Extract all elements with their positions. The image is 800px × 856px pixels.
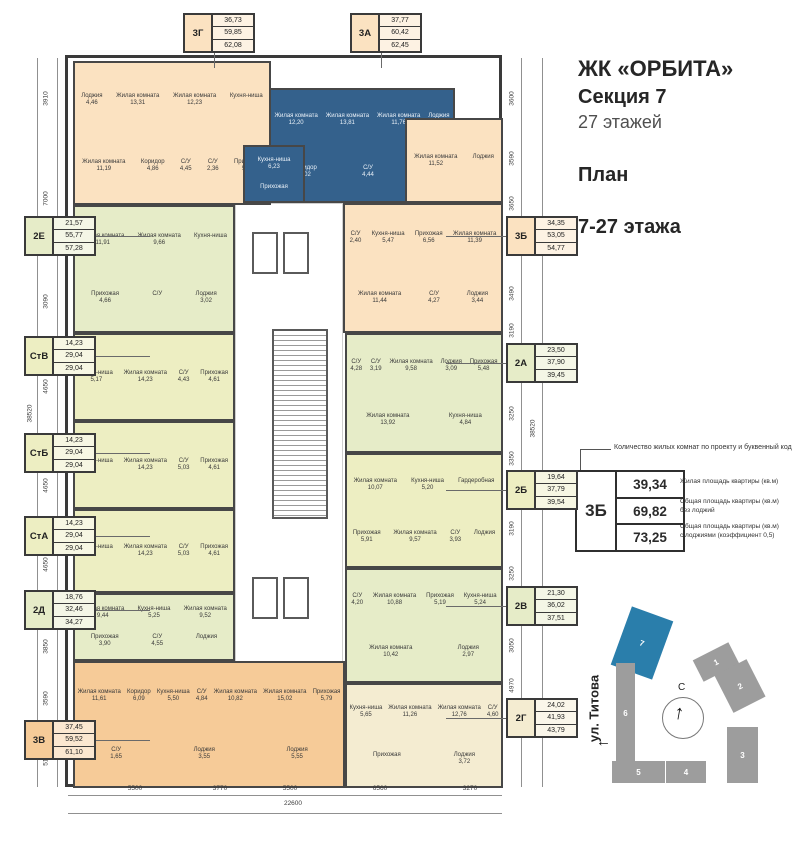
unit-code: 2Е	[26, 218, 54, 254]
building-core	[235, 203, 343, 685]
unit-label-2Б: 2Б19,6437,7939,54	[506, 470, 578, 510]
label-leader	[446, 363, 506, 364]
room-label: С/У3,19	[370, 359, 382, 373]
plan-title-line2: 7-27 этажа	[578, 216, 681, 238]
legend-unit-values: 39,34 69,82 73,25	[617, 472, 683, 550]
room-label: С/У4,28	[350, 359, 362, 373]
legend-value-living: 39,34	[617, 472, 683, 499]
apartment-3А: Кухня-ниша6,23Прихожая	[243, 145, 305, 203]
unit-label-2Д: 2Д18,7632,4634,27	[24, 590, 96, 630]
dimension-label: 3250	[509, 394, 516, 434]
room-label: Жилая комната15,02	[263, 689, 306, 703]
unit-label-СтА: СтА14,2329,0429,04	[24, 516, 96, 556]
project-title: ЖК «ОРБИТА»	[578, 56, 733, 82]
apartment-2Е: Жилая комната11,91Жилая комната9,66Кухня…	[73, 205, 235, 333]
legend-desc-total: Общая площадь квартиры (кв.м) без лоджий	[680, 498, 798, 516]
unit-code: СтБ	[26, 435, 54, 471]
label-leader	[88, 236, 150, 237]
legend-unit-code: 3Б	[577, 472, 617, 550]
label-leader	[446, 490, 506, 491]
room-label: Прихожая5,79	[313, 689, 341, 703]
room-label: С/У5,03	[178, 544, 190, 558]
room-label: Кухня-ниша5,24	[464, 593, 497, 607]
label-leader	[88, 356, 150, 357]
room-label: С/У1,65	[110, 747, 122, 761]
room-label: Прихожая	[373, 752, 401, 766]
room-label: Жилая комната11,52	[414, 154, 457, 168]
label-leader	[88, 740, 150, 741]
street-direction-arrow-icon: ←	[596, 733, 611, 750]
label-leader	[381, 53, 382, 68]
room-label: С/У3,93	[449, 530, 461, 544]
legend-unit-box: 3Б 39,34 69,82 73,25	[575, 470, 685, 552]
room-label: Прихожая4,61	[200, 458, 228, 472]
room-label: Жилая комната14,23	[124, 370, 167, 384]
unit-values: 23,5037,9039,45	[536, 345, 576, 381]
room-label: Коридор6,09	[127, 689, 151, 703]
plan-title-line1: План	[578, 164, 628, 186]
room-label: Жилая комната9,58	[389, 359, 432, 373]
unit-values: 14,2329,0429,04	[54, 435, 94, 471]
room-label: Прихожая5,19	[426, 593, 454, 607]
north-label: С	[678, 682, 685, 693]
dimension-label: 6560	[360, 785, 400, 792]
elevator-shaft	[283, 577, 309, 619]
floors-subtitle: 27 этажей	[578, 112, 662, 133]
room-label: Прихожая4,66	[91, 291, 119, 305]
unit-values: 14,2329,0429,04	[54, 338, 94, 374]
elevator-shaft	[252, 232, 278, 274]
room-label: Лоджия3,55	[194, 747, 215, 761]
room-label: Кухня-ниша6,23	[258, 157, 291, 171]
dimension-label: 7000	[43, 179, 50, 219]
unit-label-3А: 3А37,7760,4262,45	[350, 13, 422, 53]
unit-label-2Г: 2Г24,0241,9343,79	[506, 698, 578, 738]
room-label: Кухня-ниша5,25	[138, 606, 171, 620]
room-label: Кухня-ниша	[194, 233, 227, 247]
dimension-label: 3600	[509, 79, 516, 119]
label-leader	[214, 53, 215, 68]
unit-values: 34,3553,0554,77	[536, 218, 576, 254]
unit-code: 3А	[352, 15, 380, 51]
room-label: С/У4,84	[196, 689, 208, 703]
label-leader	[88, 453, 150, 454]
dim-line-right-outer	[542, 58, 543, 787]
room-label: Жилая комната11,61	[78, 689, 121, 703]
room-label: Кухня-ниша5,65	[349, 705, 382, 719]
unit-code: 3Г	[185, 15, 213, 51]
dimension-label: 3490	[509, 274, 516, 314]
room-label: Жилая комната9,57	[393, 530, 436, 544]
plan-title: План 7-27 этажа	[578, 162, 681, 240]
unit-label-2Е: 2Е21,5755,7757,28	[24, 216, 96, 256]
apartment-3В: Жилая комната11,61Коридор6,09Кухня-ниша5…	[73, 661, 345, 788]
room-label: Прихожая4,61	[200, 370, 228, 384]
label-leader	[88, 536, 150, 537]
room-label: Кухня-ниша5,20	[411, 478, 444, 492]
room-label: Кухня-ниша5,50	[157, 689, 190, 703]
legend-value-total: 69,82	[617, 499, 683, 526]
room-label: Жилая комната11,19	[82, 159, 125, 173]
site-building-6: 6	[616, 663, 635, 763]
room-label: Прихожая6,56	[415, 231, 443, 245]
dimension-total-bottom: 22600	[273, 800, 313, 807]
room-label: Лоджия	[473, 154, 494, 168]
room-label: Жилая комната13,92	[366, 413, 409, 427]
room-label: С/У2,36	[207, 159, 219, 173]
label-leader	[88, 610, 150, 611]
room-label: Лоджия2,97	[458, 645, 479, 659]
unit-code: 2В	[508, 588, 536, 624]
unit-code: 2Б	[508, 472, 536, 508]
room-label: Жилая комната10,07	[354, 478, 397, 492]
room-label: Лоджия5,55	[286, 747, 307, 761]
room-label: Прихожая	[260, 184, 288, 191]
unit-label-СтБ: СтБ14,2329,0429,04	[24, 433, 96, 473]
dimension-label: 3910	[43, 79, 50, 119]
room-label: Жилая комната11,39	[453, 231, 496, 245]
site-building-3: 3	[727, 727, 758, 783]
unit-values: 24,0241,9343,79	[536, 700, 576, 736]
dim-line-left-inner	[57, 58, 58, 787]
room-label: Лоджия	[196, 634, 217, 648]
unit-values: 21,3036,0237,51	[536, 588, 576, 624]
apartment-СтА: Кухня-нишаЖилая комната14,23С/У5,03Прихо…	[73, 509, 235, 593]
dimension-label: 3590	[43, 679, 50, 719]
dim-line-bottom-total	[68, 813, 502, 814]
dimension-label: 3090	[43, 282, 50, 322]
dimension-total-right: 38520	[530, 409, 537, 449]
room-label: Лоджия3,44	[467, 291, 488, 305]
apartment-3Б: Жилая комната11,52Лоджия	[405, 118, 503, 203]
unit-values: 19,6437,7939,54	[536, 472, 576, 508]
room-label: Жилая комната11,26	[388, 705, 431, 719]
floor-plan: Лоджия4,46Жилая комната13,31Жилая комнат…	[65, 55, 502, 787]
legend-connector-line	[580, 449, 611, 471]
legend-note: Количество жилых комнат по проекту и бук…	[614, 444, 800, 451]
room-label: Коридор4,86	[141, 159, 165, 173]
stairwell	[272, 329, 328, 519]
room-label: С/У4,20	[351, 593, 363, 607]
room-label: Прихожая3,90	[91, 634, 119, 648]
dimension-label: 3270	[450, 785, 490, 792]
dimension-label: 5500	[270, 785, 310, 792]
unit-code: СтВ	[26, 338, 54, 374]
room-label: Жилая комната10,88	[373, 593, 416, 607]
unit-values: 14,2329,0429,04	[54, 518, 94, 554]
room-label: Прихожая4,61	[200, 544, 228, 558]
unit-label-2В: 2В21,3036,0237,51	[506, 586, 578, 626]
room-label: С/У2,40	[350, 231, 362, 245]
room-label: Кухня-ниша5,47	[372, 231, 405, 245]
dim-line-bottom-segments	[68, 795, 502, 796]
unit-values: 37,4559,5261,10	[54, 722, 94, 758]
unit-label-3Б: 3Б34,3553,0554,77	[506, 216, 578, 256]
apartment-2Г: Кухня-ниша5,65Жилая комната11,26Жилая ко…	[345, 683, 503, 788]
apartment-3Б: С/У2,40Кухня-ниша5,47Прихожая6,56Жилая к…	[343, 203, 503, 333]
dim-line-left-outer	[37, 58, 38, 787]
legend-desc-living: Жилая площадь квартиры (кв.м)	[680, 478, 798, 487]
room-label: С/У	[152, 291, 162, 305]
label-leader	[446, 606, 506, 607]
site-building-4: 4	[666, 761, 706, 783]
room-label: Кухня-ниша	[230, 93, 263, 107]
room-label: Лоджия3,02	[196, 291, 217, 305]
room-label: Жилая комната14,23	[124, 458, 167, 472]
label-leader	[446, 718, 506, 719]
unit-label-СтВ: СтВ14,2329,0429,04	[24, 336, 96, 376]
room-label: С/У4,45	[180, 159, 192, 173]
room-label: Жилая комната13,81	[326, 113, 369, 127]
dimension-label: 5500	[115, 785, 155, 792]
apartment-СтВ: Кухня-ниша5,17Жилая комната14,23С/У4,43П…	[73, 333, 235, 421]
apartment-2В: С/У4,20Жилая комната10,88Прихожая5,19Кух…	[345, 568, 503, 683]
elevator-shaft	[252, 577, 278, 619]
room-label: Лоджия3,72	[454, 752, 475, 766]
unit-code: 3Б	[508, 218, 536, 254]
room-label: С/У4,55	[151, 634, 163, 648]
site-building-5: 5	[612, 761, 665, 783]
room-label: С/У4,44	[362, 165, 374, 179]
room-label: Жилая комната12,20	[274, 113, 317, 127]
unit-code: 2Г	[508, 700, 536, 736]
label-leader	[446, 236, 506, 237]
apartment-2Д: Жилая комната9,44Кухня-ниша5,25Жилая ком…	[73, 593, 235, 661]
room-label: Кухня-ниша4,84	[449, 413, 482, 427]
room-label: С/У4,60	[487, 705, 499, 719]
unit-code: 2Д	[26, 592, 54, 628]
unit-values: 21,5755,7757,28	[54, 218, 94, 254]
room-label: Лоджия4,46	[81, 93, 102, 107]
elevator-shaft	[283, 232, 309, 274]
section-title: Секция 7	[578, 86, 667, 109]
unit-values: 18,7632,4634,27	[54, 592, 94, 628]
room-label: Жилая комната14,23	[124, 544, 167, 558]
dimension-label: 3190	[509, 509, 516, 549]
room-label: Жилая комната12,76	[438, 705, 481, 719]
unit-label-3Г: 3Г36,7359,8562,08	[183, 13, 255, 53]
unit-code: 2А	[508, 345, 536, 381]
room-label: Жилая комната13,31	[116, 93, 159, 107]
apartment-2Б: Жилая комната10,07Кухня-ниша5,20Гардероб…	[345, 453, 503, 568]
apartment-2А: С/У4,28С/У3,19Жилая комната9,58Лоджия3,0…	[345, 333, 503, 453]
dimension-label: 3590	[509, 139, 516, 179]
room-label: Жилая комната12,23	[173, 93, 216, 107]
legend-value-total-loggia: 73,25	[617, 525, 683, 550]
dim-line-right-inner	[521, 58, 522, 787]
dimension-label: 3770	[200, 785, 240, 792]
room-label: С/У5,03	[178, 458, 190, 472]
room-label: Жилая комната10,42	[369, 645, 412, 659]
unit-values: 36,7359,8562,08	[213, 15, 253, 51]
room-label: Лоджия	[474, 530, 495, 544]
room-label: Жилая комната9,66	[138, 233, 181, 247]
room-label: Жилая комната11,44	[358, 291, 401, 305]
unit-label-2А: 2А23,5037,9039,45	[506, 343, 578, 383]
room-label: С/У4,43	[178, 370, 190, 384]
drawing-canvas: Лоджия4,46Жилая комната13,31Жилая комнат…	[0, 0, 800, 856]
room-label: Прихожая5,91	[353, 530, 381, 544]
dimension-total-left: 38520	[27, 394, 34, 434]
unit-code: 3В	[26, 722, 54, 758]
apartment-СтБ: Кухня-нишаЖилая комната14,23С/У5,03Прихо…	[73, 421, 235, 509]
unit-values: 37,7760,4262,45	[380, 15, 420, 51]
dimension-label: 3850	[43, 627, 50, 667]
dimension-label: 3050	[509, 626, 516, 666]
room-label: Лоджия3,09	[441, 359, 462, 373]
room-label: Жилая комната9,52	[184, 606, 227, 620]
apartment-3Г: Лоджия4,46Жилая комната13,31Жилая комнат…	[73, 61, 271, 205]
legend-desc-total-loggia: Общая площадь квартиры (кв.м) с лоджиями…	[680, 523, 798, 541]
unit-label-3В: 3В37,4559,5261,10	[24, 720, 96, 760]
unit-code: СтА	[26, 518, 54, 554]
room-label: С/У4,27	[428, 291, 440, 305]
room-label: Прихожая5,48	[470, 359, 498, 373]
room-label: Жилая комната10,82	[214, 689, 257, 703]
